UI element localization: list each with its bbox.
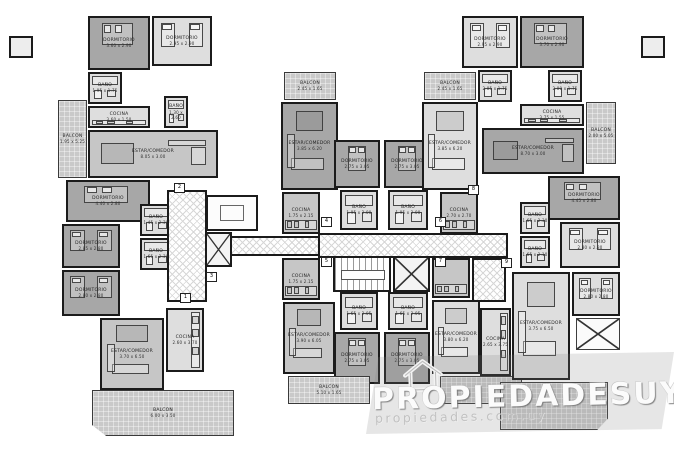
furniture bbox=[455, 286, 459, 292]
corridor bbox=[318, 233, 508, 258]
room-label: COCINA1.75 x 2.15 bbox=[289, 274, 314, 285]
room-label: ESTAR/COMEDOR3.80 x 6.20 bbox=[435, 332, 477, 343]
unit-number-badge: 3 bbox=[206, 272, 217, 282]
furniture bbox=[294, 287, 298, 294]
room-label: COCINA2.65 x 3.75 bbox=[483, 337, 508, 348]
room-label: DORMITORIO2.75 x 3.05 bbox=[341, 159, 373, 170]
room-label: DORMITORIO2.80 x 2.80 bbox=[75, 288, 107, 299]
room-label: BALCON5.10 x 1.65 bbox=[317, 385, 342, 396]
furniture bbox=[437, 286, 441, 292]
furniture bbox=[408, 340, 414, 346]
room-cocina: COCINA1.75 x 2.15 bbox=[282, 258, 320, 300]
furniture bbox=[548, 25, 555, 32]
room-estar-comedor: ESTAR/COMEDOR8.70 x 3.00 bbox=[482, 128, 584, 174]
room-label: ESTAR/COMEDOR3.90 x 6.05 bbox=[288, 333, 330, 344]
room-cocina: COCINA1.75 x 2.15 bbox=[282, 192, 320, 234]
stair-rail bbox=[341, 270, 384, 280]
furniture bbox=[444, 286, 448, 292]
room-plain bbox=[206, 195, 258, 231]
room-ba-o: BAÑO1.95 x 2.00 bbox=[340, 190, 378, 230]
furniture bbox=[562, 144, 574, 162]
furniture bbox=[99, 278, 108, 283]
room-label: BAÑO2.05 x 1.75 bbox=[483, 81, 508, 92]
room-estar-comedor: ESTAR/COMEDOR8.05 x 3.00 bbox=[88, 130, 218, 178]
room-label: DORMITORIO3.60 x 2.90 bbox=[103, 38, 135, 49]
room-balcon: BALCON1.95 x 5.25 bbox=[58, 100, 87, 178]
furniture bbox=[190, 24, 200, 30]
furniture bbox=[408, 147, 414, 152]
furniture bbox=[112, 364, 149, 374]
room-label: BALCON2.00 x 5.05 bbox=[589, 128, 614, 139]
furniture bbox=[452, 221, 456, 228]
watermark-brand: PROPIEDADESUY bbox=[372, 376, 674, 418]
furniture bbox=[358, 147, 364, 152]
room-ba-o: BAÑO1.30 x 2.60 bbox=[164, 96, 188, 128]
room-dormitorio: DORMITORIO2.80 x 2.80 bbox=[572, 272, 620, 316]
furniture bbox=[297, 309, 322, 325]
furniture bbox=[432, 158, 464, 171]
room-label: DORMITORIO2.95 x 2.90 bbox=[166, 36, 198, 47]
room-label: DORMITORIO2.95 x 2.90 bbox=[474, 37, 506, 48]
room-label: BAÑO1.95 x 1.75 bbox=[93, 83, 118, 94]
room-label: COCINA1.75 x 2.15 bbox=[289, 208, 314, 219]
unit-number-badge: 7 bbox=[435, 257, 446, 267]
furniture bbox=[72, 278, 81, 283]
furniture bbox=[463, 221, 467, 228]
room-dormitorio: DORMITORIO4.40 x 2.80 bbox=[66, 180, 150, 222]
room-label: DORMITORIO4.40 x 2.80 bbox=[92, 196, 124, 207]
room-label: BAÑO1.30 x 2.60 bbox=[166, 104, 186, 120]
furniture bbox=[445, 308, 468, 325]
room-label: DORMITORIO2.80 x 2.80 bbox=[574, 240, 606, 251]
furniture bbox=[220, 205, 243, 220]
wall-stub bbox=[9, 36, 33, 58]
furniture bbox=[293, 348, 323, 358]
room-label: ESTAR/COMEDOR3.85 x 6.20 bbox=[429, 141, 471, 152]
room-label: ESTAR/COMEDOR3.85 x 6.20 bbox=[289, 141, 331, 152]
furniture bbox=[523, 341, 556, 357]
room-ba-o: BAÑO1.65 x 2.05 bbox=[388, 292, 428, 330]
furniture bbox=[287, 287, 291, 294]
furniture bbox=[527, 282, 555, 307]
room-label: BAÑO1.65 x 2.10 bbox=[523, 247, 548, 258]
furniture bbox=[518, 311, 526, 353]
room-label: COCINA2.70 x 2.70 bbox=[447, 208, 472, 219]
unit-number-badge: 9 bbox=[501, 258, 512, 268]
furniture bbox=[498, 25, 507, 31]
furniture bbox=[72, 232, 81, 237]
furniture bbox=[168, 140, 206, 146]
furniture bbox=[472, 25, 481, 31]
room-cocina: COCINA3.75 x 1.55 bbox=[520, 104, 584, 126]
room-label: BALCON2.45 x 1.65 bbox=[298, 81, 323, 92]
room-label: BALCON2.45 x 1.65 bbox=[438, 81, 463, 92]
room-label: ESTAR/COMEDOR8.70 x 3.00 bbox=[512, 146, 554, 157]
furniture bbox=[87, 187, 97, 193]
room-label: DORMITORIO2.75 x 3.05 bbox=[341, 353, 373, 364]
room-dormitorio: DORMITORIO3.70 x 2.90 bbox=[520, 16, 584, 68]
room-dormitorio: DORMITORIO2.95 x 2.90 bbox=[152, 16, 212, 66]
furniture bbox=[116, 325, 147, 341]
furniture bbox=[99, 232, 108, 237]
furniture bbox=[349, 340, 355, 346]
room-label: COCINA2.60 x 3.70 bbox=[173, 335, 198, 346]
room-estar-comedor: ESTAR/COMEDOR3.85 x 6.20 bbox=[422, 102, 478, 190]
room-label: ESTAR/COMEDOR3.70 x 6.50 bbox=[111, 349, 153, 360]
room-estar-comedor: ESTAR/COMEDOR3.70 x 6.50 bbox=[100, 318, 164, 390]
room-ba-o: BAÑO1.95 x 1.75 bbox=[88, 72, 122, 104]
room-cocina: COCINA2.60 x 3.70 bbox=[166, 308, 204, 372]
room-label: ESTAR/COMEDOR8.05 x 3.00 bbox=[132, 149, 174, 160]
unit-number-badge: 6 bbox=[435, 217, 446, 227]
room-ba-o: BAÑO1.65 x 2.05 bbox=[340, 292, 378, 330]
furniture bbox=[581, 280, 588, 285]
furniture bbox=[294, 221, 298, 228]
furniture bbox=[349, 147, 355, 152]
room-label: BALCON6.00 x 3.50 bbox=[151, 408, 176, 419]
room-label: BAÑO1.45 x 2.30 bbox=[144, 215, 169, 226]
furniture bbox=[115, 25, 122, 33]
elevator-shaft bbox=[393, 256, 430, 292]
furniture bbox=[399, 147, 405, 152]
room-label: DORMITORIO2.85 x 2.80 bbox=[75, 241, 107, 252]
furniture bbox=[296, 111, 324, 131]
furniture bbox=[566, 184, 574, 190]
room-label: DORMITORIO4.45 x 2.80 bbox=[568, 193, 600, 204]
room-dormitorio: DORMITORIO2.85 x 2.80 bbox=[62, 224, 120, 268]
room-label: BAÑO1.95 x 2.00 bbox=[347, 205, 372, 216]
furniture bbox=[445, 221, 449, 228]
wall-stub bbox=[641, 36, 665, 58]
furniture bbox=[101, 143, 134, 163]
room-label: BAÑO1.65 x 2.30 bbox=[144, 249, 169, 260]
room-ba-o: BAÑO2.05 x 1.75 bbox=[478, 70, 512, 102]
room-cocina: COCINA2.70 x 2.70 bbox=[440, 192, 478, 234]
room-label: DORMITORIO2.75 x 3.05 bbox=[391, 159, 423, 170]
room-dormitorio: DORMITORIO3.60 x 2.90 bbox=[88, 16, 150, 70]
furniture bbox=[191, 147, 206, 165]
furniture bbox=[399, 340, 405, 346]
room-ba-o: BAÑO2.00 x 1.75 bbox=[548, 70, 582, 102]
furniture bbox=[536, 25, 543, 32]
furniture bbox=[528, 119, 536, 122]
floor-plan: DORMITORIO3.60 x 2.90DORMITORIO2.95 x 2.… bbox=[0, 0, 674, 450]
corridor bbox=[167, 190, 207, 302]
room-cocina: COCINA3.60 x 1.50 bbox=[88, 106, 150, 128]
room-label: BAÑO1.65 x 2.05 bbox=[347, 306, 372, 317]
furniture bbox=[358, 340, 364, 346]
unit-number-badge: 4 bbox=[321, 217, 332, 227]
furniture bbox=[305, 287, 309, 294]
furniture bbox=[305, 221, 309, 228]
room-label: BAÑO1.65 x 2.05 bbox=[396, 306, 421, 317]
unit-number-badge: 2 bbox=[174, 183, 185, 193]
room-balcon: BALCON2.45 x 1.65 bbox=[424, 72, 476, 100]
staircase bbox=[333, 256, 391, 292]
room-label: BAÑO2.00 x 1.75 bbox=[553, 81, 578, 92]
furniture bbox=[598, 230, 608, 235]
unit-number-badge: 8 bbox=[468, 185, 479, 195]
furniture bbox=[436, 111, 463, 131]
furniture bbox=[501, 316, 506, 324]
room-estar-comedor: ESTAR/COMEDOR3.90 x 6.05 bbox=[283, 302, 335, 374]
room-dormitorio: DORMITORIO4.45 x 2.80 bbox=[548, 176, 620, 220]
room-dormitorio: DORMITORIO2.80 x 2.80 bbox=[560, 222, 620, 268]
room-dormitorio: DORMITORIO2.95 x 2.90 bbox=[462, 16, 518, 68]
room-dormitorio: DORMITORIO2.75 x 3.05 bbox=[334, 140, 380, 188]
room-estar-comedor: ESTAR/COMEDOR3.85 x 6.20 bbox=[281, 102, 338, 190]
room-label: ESTAR/COMEDOR3.75 x 6.50 bbox=[520, 321, 562, 332]
furniture bbox=[102, 187, 112, 193]
room-balcon: BALCON2.45 x 1.65 bbox=[284, 72, 336, 100]
furniture bbox=[96, 121, 104, 124]
furniture bbox=[192, 316, 198, 324]
room-dormitorio: DORMITORIO2.80 x 2.80 bbox=[62, 270, 120, 316]
unit-number-badge: 5 bbox=[321, 257, 332, 267]
room-ba-o: BAÑO1.95 x 2.00 bbox=[388, 190, 428, 230]
elevator-shaft bbox=[205, 232, 232, 267]
room-balcon: BALCON6.00 x 3.50 bbox=[92, 390, 234, 436]
furniture bbox=[162, 24, 172, 30]
furniture bbox=[603, 280, 610, 285]
room-balcon: BALCON2.00 x 5.05 bbox=[586, 102, 616, 164]
room-label: COCINA3.75 x 1.55 bbox=[540, 110, 565, 121]
furniture bbox=[104, 25, 111, 33]
corridor bbox=[230, 236, 322, 256]
furniture bbox=[570, 230, 580, 235]
room-label: BALCON1.95 x 5.25 bbox=[60, 134, 85, 145]
unit-number-badge: 1 bbox=[180, 293, 191, 303]
furniture bbox=[579, 184, 587, 190]
room-label: COCINA3.60 x 1.50 bbox=[107, 112, 132, 123]
crossed-terrace bbox=[576, 318, 620, 350]
room-label: DORMITORIO3.70 x 2.90 bbox=[536, 37, 568, 48]
room-ba-o: BAÑO1.65 x 2.10 bbox=[520, 236, 550, 268]
room-label: BAÑO1.65 x 2.30 bbox=[523, 213, 548, 224]
furniture bbox=[291, 158, 324, 171]
room-balcon: BALCON5.10 x 1.65 bbox=[288, 376, 370, 404]
furniture bbox=[192, 347, 198, 355]
furniture bbox=[545, 138, 574, 143]
room-ba-o: BAÑO1.65 x 2.30 bbox=[520, 202, 550, 234]
furniture bbox=[287, 221, 291, 228]
room-label: DORMITORIO2.80 x 2.80 bbox=[580, 289, 612, 300]
room-label: BAÑO1.95 x 2.00 bbox=[396, 205, 421, 216]
